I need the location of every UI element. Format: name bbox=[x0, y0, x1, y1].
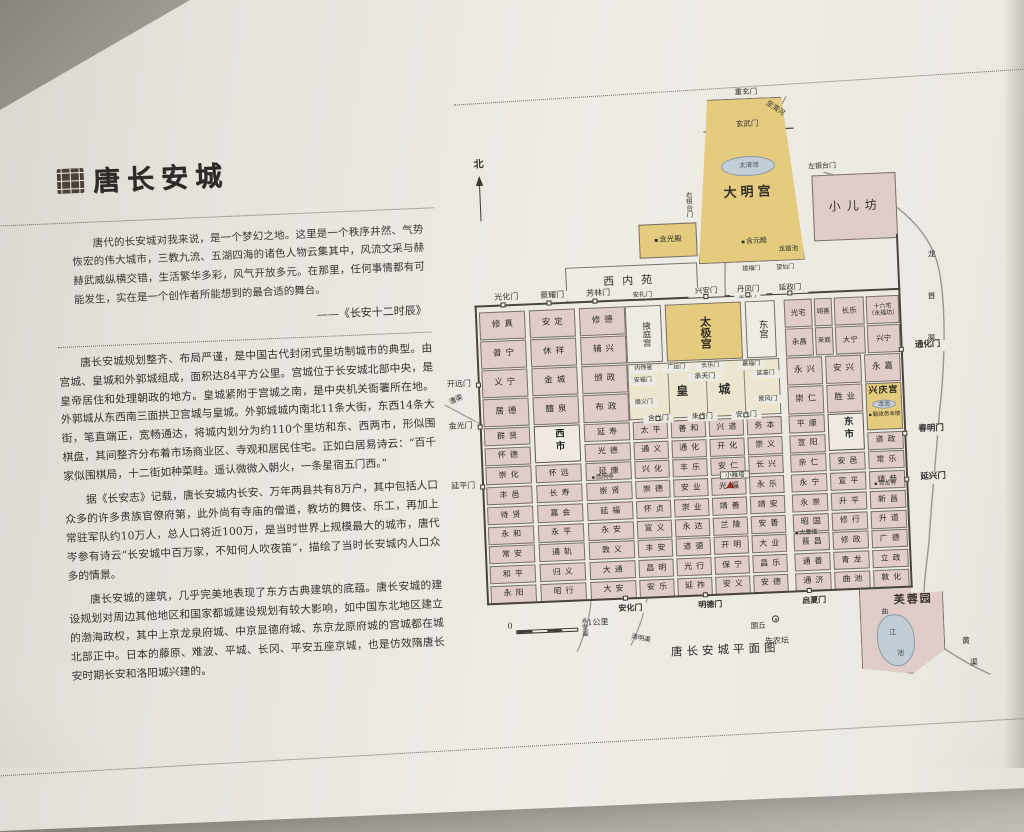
dayanta-label: 大雁塔 bbox=[792, 529, 820, 537]
ward-cell: 普宁 bbox=[480, 340, 527, 369]
longshou-pond-label: 龙首池 bbox=[770, 245, 806, 255]
ward-cell: 升平 bbox=[831, 491, 868, 510]
ward-cell: 通义 bbox=[633, 440, 669, 459]
taiye-pond-label: 太液池 bbox=[729, 161, 769, 172]
jiafu-gate-label: 嘉福门 bbox=[737, 361, 765, 370]
longshou-canal-label: 龙 bbox=[927, 250, 937, 260]
yuanqiu-altar-label: 圜丘 bbox=[746, 622, 770, 632]
ward-cell: 待贤 bbox=[487, 505, 534, 525]
qujiang-pool-label: 池 bbox=[895, 650, 905, 660]
qujiang-pool-label: 曲 bbox=[880, 609, 890, 619]
ward-cell: 修真 bbox=[479, 311, 526, 340]
ward-cell: 义宁 bbox=[481, 369, 528, 398]
changan-map: 大明宫太液池重玄门玄武门含元殿龙首池左银台门右银台门含光殿西内苑玄武门安礼门小儿… bbox=[430, 70, 1005, 740]
gate-tick bbox=[703, 294, 708, 299]
ward-cell: 居德 bbox=[483, 397, 530, 426]
ward-cell: 永兴 bbox=[786, 356, 823, 385]
zuoyintai-gate-label: 左银台门 bbox=[801, 162, 843, 173]
ward-cell: 崇贤 bbox=[586, 481, 633, 501]
ward-cell: 和平 bbox=[490, 564, 537, 584]
ward-cell: 崇义 bbox=[747, 436, 783, 455]
gate-tick bbox=[478, 424, 483, 429]
xingqing-palace-label: 兴庆宫 bbox=[868, 386, 898, 397]
ward-cell: 靖善 bbox=[712, 496, 748, 515]
ward-cell: 兴化 bbox=[634, 460, 670, 479]
jingfeng-gate-label: 景风门 bbox=[753, 395, 783, 404]
jinguang-gate-label: 金光门 bbox=[443, 422, 477, 433]
ward-cell: 道德 bbox=[676, 537, 712, 556]
guanghua-gate-label: 光化门 bbox=[488, 293, 524, 304]
ward-cell: 大业 bbox=[751, 534, 787, 553]
ward-cell: 颁政 bbox=[581, 364, 628, 393]
gate-tick bbox=[623, 595, 628, 600]
ward-cell: 胜业 bbox=[826, 384, 863, 413]
qixia-gate-label: 启夏门 bbox=[795, 595, 833, 607]
fanglin-gate-label: 芳林门 bbox=[580, 289, 616, 300]
ward-cell: 宣平 bbox=[830, 472, 867, 491]
yanxing-gate-label: 延兴门 bbox=[912, 472, 954, 485]
ward-cell: 醴泉 bbox=[532, 395, 579, 424]
ward-cell: 常安 bbox=[489, 545, 536, 565]
ward-cell: 永达 bbox=[675, 518, 711, 537]
tonghua-gate-label: 通化门 bbox=[906, 340, 948, 353]
ward-cell: 安邑 bbox=[829, 452, 866, 471]
yeting-palace-label: 掖庭宫 bbox=[637, 312, 651, 356]
ward-cell: 广德 bbox=[871, 529, 908, 548]
ward-cell: 青龙 bbox=[833, 550, 870, 569]
xiaoyanta-label: 小雁塔 bbox=[720, 470, 750, 479]
jianfu-gate-label: 建福门 bbox=[733, 265, 769, 276]
ward-cell: 延寿 bbox=[584, 422, 631, 442]
ward-cell: 修德 bbox=[579, 306, 626, 335]
xingqing-palace: 兴庆宫龙池勤政务本楼 bbox=[865, 382, 903, 430]
daming-palace-label: 大明宫 bbox=[717, 185, 782, 204]
ward-cell: 长寿 bbox=[536, 483, 583, 503]
gate-tick bbox=[745, 292, 750, 297]
ward-cell: 永和 bbox=[488, 525, 535, 545]
ward-cell: 亲仁 bbox=[790, 453, 827, 472]
dong-palace-label: 东宫 bbox=[754, 313, 767, 343]
chunming-gate-label: 春明门 bbox=[910, 424, 952, 437]
longshou-canal-label: 首 bbox=[926, 292, 936, 302]
ward-cell: 平康 bbox=[788, 414, 825, 433]
gate-tick bbox=[787, 290, 792, 295]
ward-cell: 丰邑 bbox=[486, 486, 533, 506]
qujiang-pool-label: 江 bbox=[888, 629, 898, 639]
gate-tick bbox=[743, 412, 748, 417]
ward-cell: 丰安 bbox=[638, 539, 674, 558]
ward-cell: 金城 bbox=[531, 366, 578, 395]
gate-tick bbox=[655, 416, 660, 421]
ward-cell: 延福 bbox=[587, 501, 634, 521]
ward-cell: 辅兴 bbox=[580, 335, 627, 364]
ward-cell: 昌乐 bbox=[752, 554, 788, 573]
compass-north-label: 北 bbox=[470, 159, 486, 172]
youyintai-gate-label: 右银台门 bbox=[680, 181, 693, 229]
body-paragraph-2: 据《长安志》记载，唐长安城内长安、万年两县共有8万户，其中包括人口众多的许多贵族… bbox=[64, 477, 442, 586]
guangyun-gate-label: 广运门 bbox=[661, 364, 691, 373]
ward-cell: 布政 bbox=[582, 393, 629, 422]
body-paragraph-3: 唐长安城的建筑，几乎完美地表现了东方古典建筑的底蕴。唐长安城的建设规划对周边其他… bbox=[68, 577, 446, 686]
ward-cell: 安善 bbox=[751, 514, 787, 533]
market-east-label: 东市 bbox=[840, 416, 855, 449]
yanping-gate-label: 延平门 bbox=[446, 482, 480, 493]
gate-tick bbox=[807, 588, 812, 593]
wangxian-gate-label: 望仙门 bbox=[767, 264, 803, 275]
gate-tick bbox=[546, 300, 551, 305]
ward-cell: 崇业 bbox=[674, 498, 710, 517]
ward-cell: 安德 bbox=[753, 573, 789, 592]
market-west-label: 西市 bbox=[551, 428, 566, 461]
ward-cell: 光德 bbox=[584, 442, 631, 462]
ward-cell: 保宁 bbox=[714, 555, 750, 574]
title-seal-icon bbox=[56, 168, 84, 194]
ward-cell: 道政 bbox=[867, 431, 904, 450]
ward-cell: 敦化 bbox=[873, 568, 910, 587]
anli-gate-label: 安礼门 bbox=[626, 291, 658, 301]
ward-cell: 兰陵 bbox=[713, 516, 749, 535]
xiannongtan-label: 先农坛 bbox=[755, 636, 799, 648]
scale-zero-label: 0 bbox=[506, 622, 514, 631]
ward-cell: 靖安 bbox=[750, 495, 786, 514]
anfu-gate-label: 安福门 bbox=[629, 377, 657, 386]
ward-cell: 通济 bbox=[795, 572, 832, 591]
body-paragraphs: 唐长安城规划整齐、布局严谨，是中国古代封闭式里坊制城市的典型。由宫城、皇城和外郭… bbox=[58, 339, 446, 692]
ward-cell: 光宅 bbox=[784, 299, 813, 328]
quote-paragraph: 唐代的长安城对我来说，是一个梦幻之地。这里是一个秩序井然、气势恢宏的伟大城市，三… bbox=[71, 220, 426, 309]
ward-cell: 永乐 bbox=[749, 475, 785, 494]
ward-cell: 群贤 bbox=[484, 426, 531, 446]
scale-unit-label: 1公里 bbox=[582, 618, 614, 628]
kaiyuan-gate-label: 开远门 bbox=[442, 380, 476, 391]
ward-cell: 通轨 bbox=[539, 542, 586, 562]
gate-tick bbox=[480, 484, 485, 489]
jingyao-gate-label: 景耀门 bbox=[534, 291, 570, 302]
ward-cell: 修行 bbox=[832, 511, 869, 530]
ward-cell: 来庭 bbox=[815, 327, 834, 355]
chengtian-gate-label: 承天门 bbox=[688, 372, 722, 381]
ward-cell: 新昌 bbox=[870, 490, 907, 509]
ward-cell: 大通 bbox=[589, 560, 636, 580]
gate-tick bbox=[703, 592, 708, 597]
mingde-gate-label: 明德门 bbox=[691, 599, 729, 611]
ward-cell: 休祥 bbox=[530, 337, 577, 366]
ward-cell: 永昌 bbox=[785, 328, 814, 357]
ward-cell: 宣义 bbox=[637, 519, 673, 538]
huang-canal-label: 渠 bbox=[969, 659, 979, 669]
ward-cell: 开化 bbox=[709, 437, 745, 456]
qinzheng-tower-label: 勤政务本楼 bbox=[869, 412, 901, 419]
ward-cell: 怀贞 bbox=[636, 499, 672, 518]
ward-cell: 永安 bbox=[588, 521, 635, 541]
xiaoyanta-pagoda-icon bbox=[726, 481, 734, 488]
huang-canal-label: 黄 bbox=[961, 637, 971, 647]
gate-tick bbox=[592, 299, 597, 304]
ward-cell: 开明 bbox=[713, 536, 749, 555]
ward-cell: 怀德 bbox=[485, 446, 532, 466]
gate-tick bbox=[899, 347, 904, 352]
ward-cell: 常乐 bbox=[868, 450, 905, 469]
ward-cell: 昌明 bbox=[638, 558, 674, 577]
ward-cell: 永平 bbox=[538, 523, 585, 543]
ward-cell: 怀远 bbox=[535, 464, 582, 484]
wall-background-edge bbox=[1004, 0, 1024, 768]
ward-cell: 通善 bbox=[794, 552, 831, 571]
ward-cell: 崇德 bbox=[635, 480, 671, 499]
ximingsi-label: 西明寺 bbox=[588, 474, 618, 482]
qinglongsi-label: 青龙寺 bbox=[870, 480, 900, 488]
long-pond: 龙池 bbox=[872, 400, 896, 410]
gate-tick bbox=[500, 302, 505, 307]
ward-cell: 安业 bbox=[673, 478, 709, 497]
ward-cell: 丰乐 bbox=[672, 458, 708, 477]
ward-cell: 升道 bbox=[871, 509, 908, 528]
xiaoerfang-label: 小儿坊 bbox=[824, 198, 886, 214]
ward-cell: 崇仁 bbox=[787, 385, 824, 414]
ward-cell: 永嘉 bbox=[864, 353, 901, 382]
changle-gate-label: 长乐门 bbox=[695, 362, 725, 371]
ward-cell: 翊善 bbox=[814, 298, 833, 326]
exhibit-panel: 唐长安城 唐代的长安城对我来说，是一个梦幻之地。这里是一个秩序井然、气势恢宏的伟… bbox=[0, 0, 1024, 832]
ward-cell: 修政 bbox=[832, 531, 869, 550]
ward-cell: 安定 bbox=[529, 308, 576, 337]
shunyi-gate-label: 顺义门 bbox=[630, 399, 658, 408]
page-title: 唐长安城 bbox=[93, 163, 230, 196]
taiji-palace-label: 太极宫 bbox=[696, 308, 712, 357]
gate-tick bbox=[476, 382, 481, 387]
ward-cell: 曲池 bbox=[834, 570, 871, 589]
neishisheng-label: 内侍省 bbox=[629, 365, 657, 374]
ward-cell: 兴宁 bbox=[867, 324, 901, 353]
ward-cell: 嘉会 bbox=[537, 503, 584, 523]
ward-cell: 太平 bbox=[633, 421, 669, 440]
furong-garden-label: 芙蓉园 bbox=[885, 592, 941, 607]
ward-cell: 安义 bbox=[715, 575, 751, 594]
ward-cell: 宣阳 bbox=[789, 434, 826, 453]
ward-cell: 安乐 bbox=[639, 578, 675, 597]
ward-cell: 立政 bbox=[872, 549, 909, 568]
yanxi-gate-label: 延喜门 bbox=[752, 370, 780, 379]
ward-cell: 归义 bbox=[539, 562, 586, 582]
gate-tick bbox=[904, 477, 909, 482]
ward-cell: 崇化 bbox=[485, 466, 532, 486]
ward-cell: 永宁 bbox=[791, 473, 828, 492]
ward-cell: 光行 bbox=[676, 557, 712, 576]
ward-cell: 善和 bbox=[671, 419, 707, 438]
ward-cell: 通化 bbox=[671, 439, 707, 458]
ward-cell: 敦义 bbox=[589, 540, 636, 560]
anhua-gate-label: 安化门 bbox=[611, 603, 649, 615]
ward-cell: 长乐 bbox=[834, 296, 865, 325]
ward-cell: 大宁 bbox=[835, 325, 866, 354]
body-paragraph-1: 唐长安城规划整齐、布局严谨，是中国古代封闭式里坊制城市的典型。由宫城、皇城和外郭… bbox=[58, 339, 437, 486]
long-pond-label: 龙池 bbox=[878, 401, 890, 408]
ward-cell: 安兴 bbox=[825, 355, 862, 384]
ward-cell: 长兴 bbox=[748, 455, 784, 474]
ward-cell: 十六宅（永福坊） bbox=[866, 295, 900, 324]
ward-cell: 永崇 bbox=[792, 493, 829, 512]
gate-tick bbox=[699, 414, 704, 419]
gate-tick bbox=[902, 431, 907, 436]
